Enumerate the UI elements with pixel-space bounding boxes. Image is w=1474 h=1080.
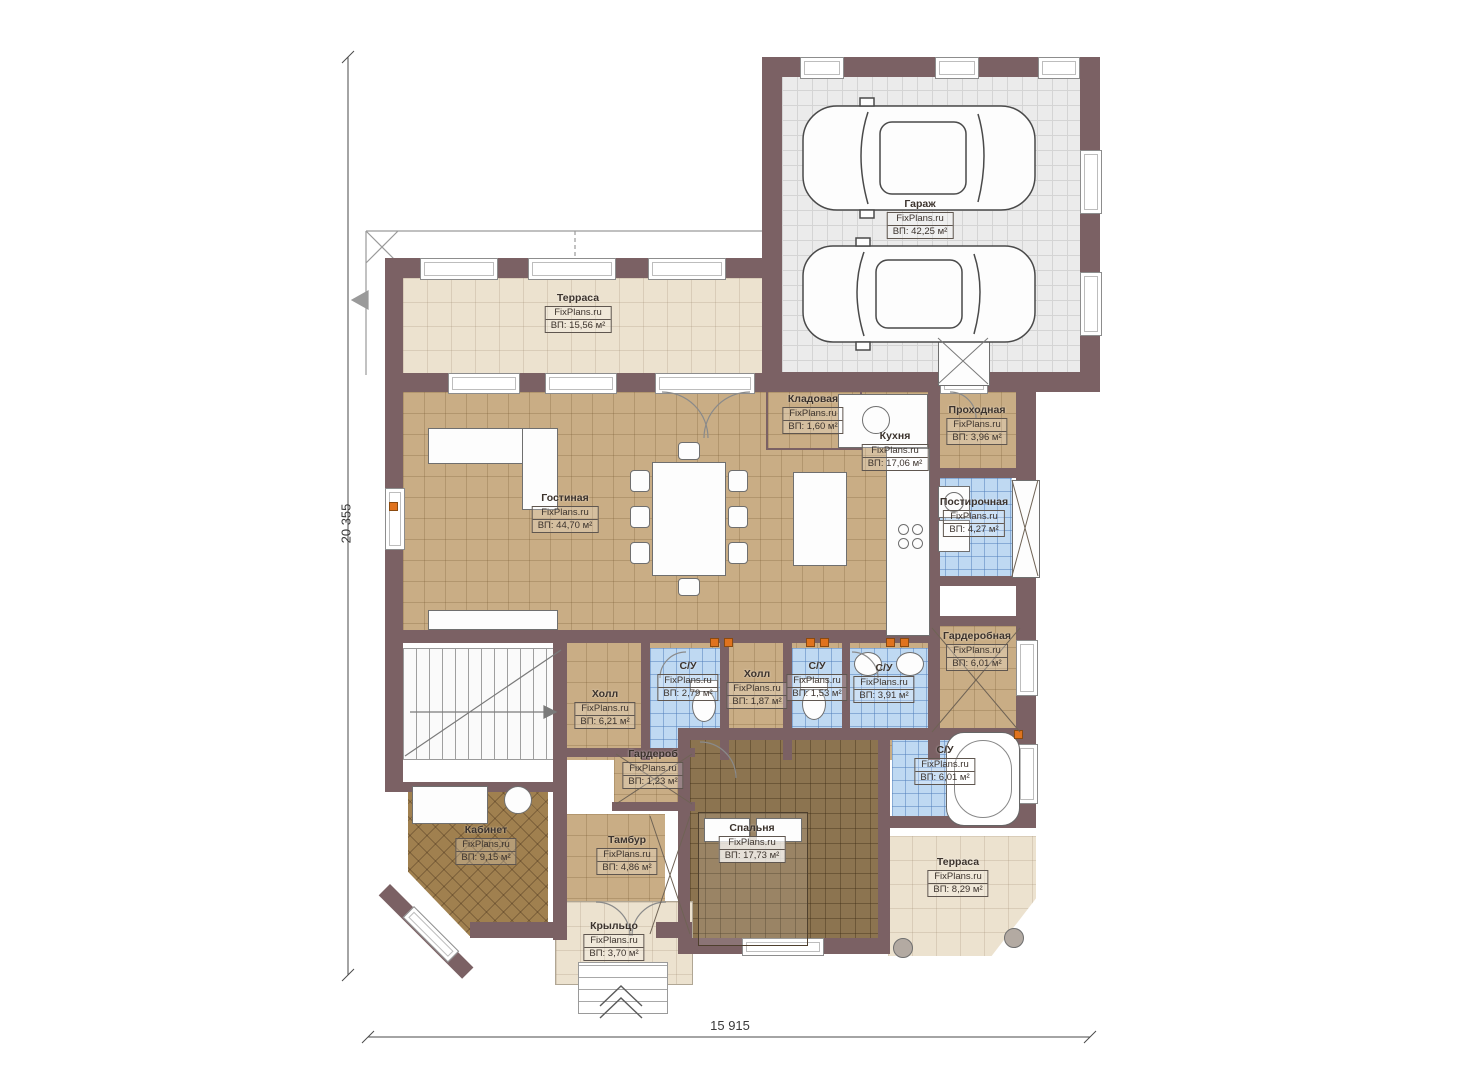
window xyxy=(385,488,405,550)
room-name: С/У xyxy=(853,662,914,675)
door-marker xyxy=(1014,730,1023,739)
room-label-terrace-bottom: Терраса FixPlans.ru ВП: 8,29 м² xyxy=(927,856,988,897)
stove-burner xyxy=(912,524,923,535)
room-info-box: FixPlans.ru ВП: 4,86 м² xyxy=(596,848,657,875)
door-marker xyxy=(724,638,733,647)
room-label-terrace-top: Терраса FixPlans.ru ВП: 15,56 м² xyxy=(545,292,612,333)
room-area: ВП: 3,91 м² xyxy=(854,690,913,702)
room-info-box: FixPlans.ru ВП: 6,21 м² xyxy=(574,702,635,729)
kitchen-island xyxy=(793,472,847,566)
room-name: Постирочная xyxy=(940,496,1008,509)
brand-text: FixPlans.ru xyxy=(863,445,928,458)
window xyxy=(1080,150,1102,214)
door-marker xyxy=(806,638,815,647)
door-marker xyxy=(900,638,909,647)
brand-text: FixPlans.ru xyxy=(947,419,1006,432)
stove-burner xyxy=(898,524,909,535)
window xyxy=(648,258,726,280)
brand-text: FixPlans.ru xyxy=(888,213,953,226)
wall-segment xyxy=(1080,57,1100,390)
room-info-box: FixPlans.ru ВП: 1,60 м² xyxy=(782,407,843,434)
room-name: С/У xyxy=(914,744,975,757)
brand-text: FixPlans.ru xyxy=(928,871,987,884)
closet-shelf xyxy=(1012,480,1040,578)
brand-text: FixPlans.ru xyxy=(623,763,682,776)
room-name: Крыльцо xyxy=(583,920,644,933)
brand-text: FixPlans.ru xyxy=(915,759,974,772)
wall-segment xyxy=(656,922,692,938)
room-area: ВП: 42,25 м² xyxy=(888,226,953,238)
room-info-box: FixPlans.ru ВП: 2,79 м² xyxy=(657,674,718,701)
room-label-bedroom: Спальня FixPlans.ru ВП: 17,73 м² xyxy=(719,822,786,863)
room-name: Кладовая xyxy=(782,393,843,406)
roof-arrow xyxy=(352,291,368,309)
wall-segment xyxy=(641,643,650,760)
room-info-box: FixPlans.ru ВП: 4,27 м² xyxy=(943,510,1004,537)
chair xyxy=(728,542,748,564)
brand-text: FixPlans.ru xyxy=(597,849,656,862)
door-opening xyxy=(655,373,755,394)
room-info-box: FixPlans.ru ВП: 1,23 м² xyxy=(622,762,683,789)
room-label-laundry: Постирочная FixPlans.ru ВП: 4,27 м² xyxy=(940,496,1008,537)
room-area: ВП: 6,01 м² xyxy=(947,658,1006,670)
door-marker xyxy=(710,638,719,647)
chair xyxy=(728,470,748,492)
wall-segment xyxy=(930,616,1016,626)
room-info-box: FixPlans.ru ВП: 3,96 м² xyxy=(946,418,1007,445)
room-area: ВП: 3,70 м² xyxy=(584,948,643,960)
tv-bench xyxy=(428,610,558,630)
room-info-box: FixPlans.ru ВП: 3,70 м² xyxy=(583,934,644,961)
brand-text: FixPlans.ru xyxy=(546,307,611,320)
room-label-hall-main: Холл FixPlans.ru ВП: 6,21 м² xyxy=(574,688,635,729)
room-info-box: FixPlans.ru ВП: 44,70 м² xyxy=(532,506,599,533)
room-name: Тамбур xyxy=(596,834,657,847)
chair xyxy=(678,578,700,596)
floor-plan-canvas: Гараж FixPlans.ru ВП: 42,25 м² Терраса F… xyxy=(0,0,1474,1080)
room-area: ВП: 2,79 м² xyxy=(658,688,717,700)
staircase xyxy=(403,648,563,760)
room-area: ВП: 1,23 м² xyxy=(623,776,682,788)
room-area: ВП: 9,15 м² xyxy=(456,852,515,864)
office-sofa xyxy=(412,786,488,824)
stove-burner xyxy=(912,538,923,549)
room-label-hall-small: Холл FixPlans.ru ВП: 1,87 м² xyxy=(726,668,787,709)
brand-text: FixPlans.ru xyxy=(720,837,785,850)
brand-text: FixPlans.ru xyxy=(575,703,634,716)
window xyxy=(1016,640,1038,696)
room-name: Гараж xyxy=(887,198,954,211)
room-info-box: FixPlans.ru ВП: 9,15 м² xyxy=(455,838,516,865)
room-area: ВП: 6,21 м² xyxy=(575,716,634,728)
room-label-closet: Гардероб FixPlans.ru ВП: 1,23 м² xyxy=(622,748,683,789)
wall-segment xyxy=(470,922,566,938)
chair xyxy=(630,470,650,492)
room-area: ВП: 8,29 м² xyxy=(928,884,987,896)
window xyxy=(935,57,979,79)
room-label-pantry: Кладовая FixPlans.ru ВП: 1,60 м² xyxy=(782,393,843,434)
porch-steps xyxy=(578,962,668,1014)
dimension-height: 20 355 xyxy=(338,504,353,544)
room-label-kitchen: Кухня FixPlans.ru ВП: 17,06 м² xyxy=(862,430,929,471)
room-name: Кабинет xyxy=(455,824,516,837)
chair xyxy=(728,506,748,528)
room-info-box: FixPlans.ru ВП: 6,01 м² xyxy=(946,644,1007,671)
room-area: ВП: 3,96 м² xyxy=(947,432,1006,444)
brand-text: FixPlans.ru xyxy=(783,408,842,421)
window xyxy=(800,57,844,79)
dimension-width: 15 915 xyxy=(710,1018,750,1033)
room-area: ВП: 17,06 м² xyxy=(863,458,928,470)
room-label-vestibule: Тамбур FixPlans.ru ВП: 4,86 м² xyxy=(596,834,657,875)
wall-segment xyxy=(403,630,940,643)
room-info-box: FixPlans.ru ВП: 17,73 м² xyxy=(719,836,786,863)
window xyxy=(545,373,617,394)
room-name: Проходная xyxy=(946,404,1007,417)
room-info-box: FixPlans.ru ВП: 1,53 м² xyxy=(786,674,847,701)
terrace-column xyxy=(1004,928,1024,948)
stove-burner xyxy=(898,538,909,549)
room-name: С/У xyxy=(786,660,847,673)
brand-text: FixPlans.ru xyxy=(584,935,643,948)
brand-text: FixPlans.ru xyxy=(658,675,717,688)
room-name: Холл xyxy=(574,688,635,701)
window xyxy=(528,258,616,280)
room-name: Спальня xyxy=(719,822,786,835)
window xyxy=(420,258,498,280)
brand-text: FixPlans.ru xyxy=(944,511,1003,524)
room-info-box: FixPlans.ru ВП: 8,29 м² xyxy=(927,870,988,897)
room-label-office: Кабинет FixPlans.ru ВП: 9,15 м² xyxy=(455,824,516,865)
brand-text: FixPlans.ru xyxy=(787,675,846,688)
garage-hatch xyxy=(938,338,990,386)
room-name: Гардероб xyxy=(622,748,683,761)
room-label-wc2: С/У FixPlans.ru ВП: 1,53 м² xyxy=(786,660,847,701)
room-area: ВП: 44,70 м² xyxy=(533,520,598,532)
brand-text: FixPlans.ru xyxy=(854,677,913,690)
door-marker xyxy=(820,638,829,647)
room-info-box: FixPlans.ru ВП: 6,01 м² xyxy=(914,758,975,785)
window xyxy=(1080,272,1102,336)
office-chair xyxy=(504,786,532,814)
room-label-wc1: С/У FixPlans.ru ВП: 2,79 м² xyxy=(657,660,718,701)
room-area: ВП: 15,56 м² xyxy=(546,320,611,332)
room-label-wardrobe-room: Гардеробная FixPlans.ru ВП: 6,01 м² xyxy=(943,630,1011,671)
room-name: Кухня xyxy=(862,430,929,443)
wall-segment xyxy=(928,640,940,760)
window xyxy=(448,373,520,394)
room-label-porch: Крыльцо FixPlans.ru ВП: 3,70 м² xyxy=(583,920,644,961)
room-label-garage: Гараж FixPlans.ru ВП: 42,25 м² xyxy=(887,198,954,239)
brand-text: FixPlans.ru xyxy=(456,839,515,852)
wall-segment xyxy=(930,468,1016,478)
room-area: ВП: 6,01 м² xyxy=(915,772,974,784)
room-name: С/У xyxy=(657,660,718,673)
room-name: Терраса xyxy=(927,856,988,869)
room-label-bathroom: С/У FixPlans.ru ВП: 6,01 м² xyxy=(914,744,975,785)
brand-text: FixPlans.ru xyxy=(727,683,786,696)
room-info-box: FixPlans.ru ВП: 1,87 м² xyxy=(726,682,787,709)
room-area: ВП: 1,53 м² xyxy=(787,688,846,700)
chair xyxy=(630,506,650,528)
room-label-prohodnaya: Проходная FixPlans.ru ВП: 3,96 м² xyxy=(946,404,1007,445)
room-info-box: FixPlans.ru ВП: 15,56 м² xyxy=(545,306,612,333)
room-label-living: Гостиная FixPlans.ru ВП: 44,70 м² xyxy=(532,492,599,533)
wall-segment xyxy=(762,372,1100,392)
room-info-box: FixPlans.ru ВП: 42,25 м² xyxy=(887,212,954,239)
door-marker xyxy=(389,502,398,511)
room-area: ВП: 17,73 м² xyxy=(720,850,785,862)
room-name: Гардеробная xyxy=(943,630,1011,643)
room-area: ВП: 1,87 м² xyxy=(727,696,786,708)
room-name: Холл xyxy=(726,668,787,681)
wall-segment xyxy=(878,728,890,950)
room-area: ВП: 4,27 м² xyxy=(944,524,1003,536)
brand-text: FixPlans.ru xyxy=(533,507,598,520)
window xyxy=(1038,57,1080,79)
room-area: ВП: 4,86 м² xyxy=(597,862,656,874)
terrace-column xyxy=(893,938,913,958)
room-name: Гостиная xyxy=(532,492,599,505)
chair xyxy=(678,442,700,460)
door-marker xyxy=(886,638,895,647)
wall-segment xyxy=(553,643,567,940)
room-name: Терраса xyxy=(545,292,612,305)
brand-text: FixPlans.ru xyxy=(947,645,1006,658)
room-area: ВП: 1,60 м² xyxy=(783,421,842,433)
wall-segment xyxy=(762,57,782,390)
dining-table xyxy=(652,462,726,576)
room-info-box: FixPlans.ru ВП: 3,91 м² xyxy=(853,676,914,703)
wall-segment xyxy=(930,576,1016,586)
room-info-box: FixPlans.ru ВП: 17,06 м² xyxy=(862,444,929,471)
chair xyxy=(630,542,650,564)
room-label-wc3: С/У FixPlans.ru ВП: 3,91 м² xyxy=(853,662,914,703)
